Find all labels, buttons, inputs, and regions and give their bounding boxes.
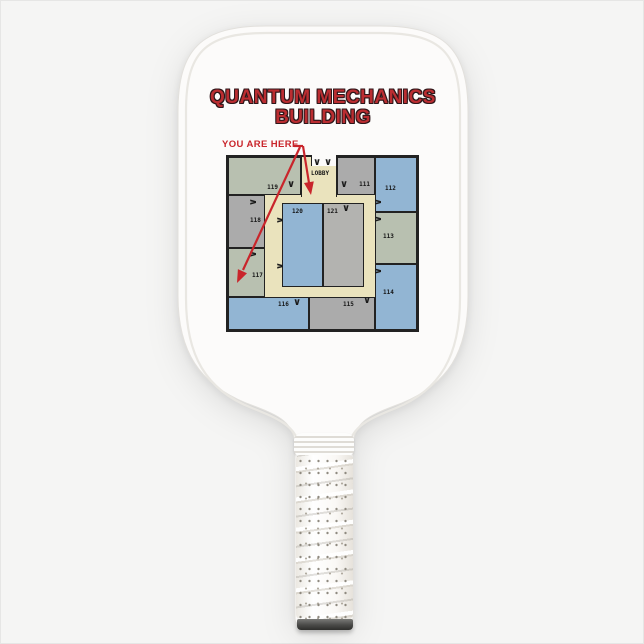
room-117: 117 [228,248,265,297]
door-icon: ∨ [249,198,259,206]
door-icon: ∨ [374,215,384,223]
title-line-2: BUILDING [178,108,468,128]
you-are-here-label: YOU ARE HERE [222,139,299,150]
door-icon: ∨ [374,198,384,206]
door-icon: ∨ [374,267,384,275]
room-label: 118 [250,217,261,224]
room-label: 112 [385,185,396,192]
door-icon: ∨ [363,296,371,306]
door-icon: ∨ [342,204,350,214]
door-icon: ∨ [313,158,321,168]
room-label: 114 [383,289,394,296]
product-photo-scene: QUANTUM MECHANICS BUILDING YOU ARE HERE … [0,0,644,644]
grip-collar [294,433,354,457]
door-icon: ∨ [340,180,348,190]
room-120: 120 [282,203,323,287]
room-118: 118 [228,195,265,248]
paddle-title: QUANTUM MECHANICS BUILDING [178,88,468,128]
room-label: 111 [359,181,370,188]
room-label: 121 [327,208,338,215]
door-icon: ∨ [276,262,286,270]
handle-end-cap [297,619,353,630]
room-label: 117 [252,272,263,279]
title-line-1: QUANTUM MECHANICS [178,88,468,108]
room-label: 115 [343,301,354,308]
room-label: 116 [278,301,289,308]
door-icon: ∨ [293,298,301,308]
room-label: 113 [383,233,394,240]
lobby-label: LOBBY [311,170,329,177]
door-icon: ∨ [324,158,332,168]
handle-grip [296,455,353,620]
room-label: 120 [292,208,303,215]
door-icon: ∨ [249,250,259,258]
room-121: 121 [323,203,364,287]
floor-plan-map: 119 111 112 113 114 115 116 117 118 120 [226,155,419,332]
door-icon: ∨ [287,180,295,190]
room-label: 119 [267,184,278,191]
door-icon: ∨ [276,216,286,224]
